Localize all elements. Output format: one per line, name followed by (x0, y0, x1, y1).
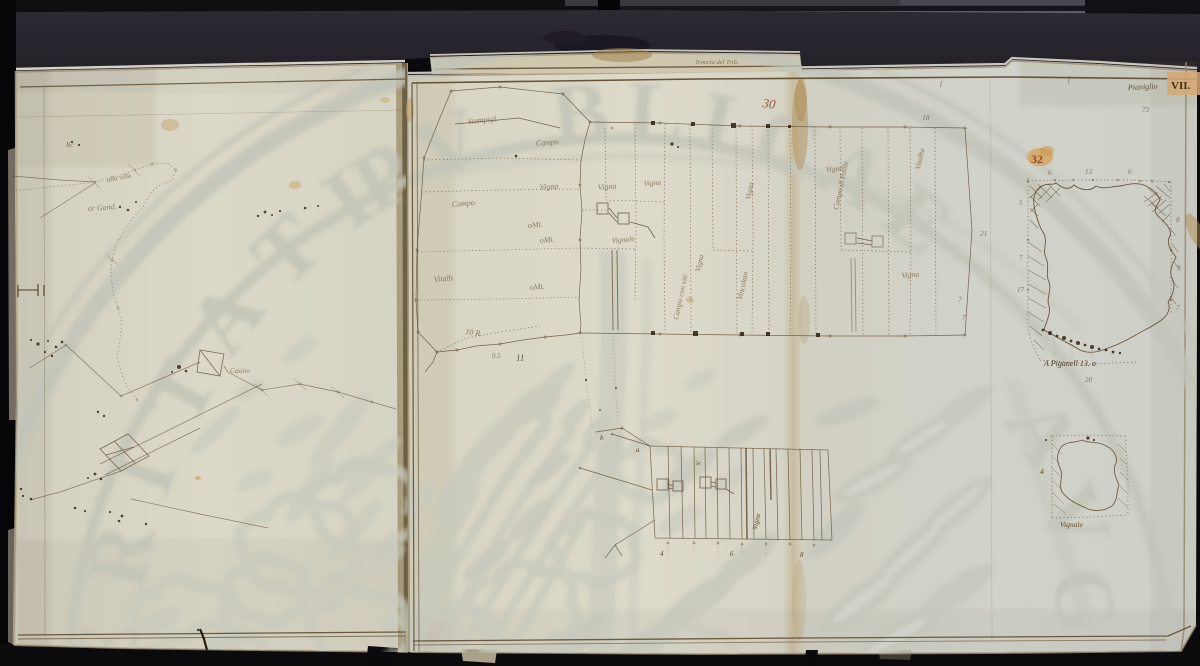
svg-text:32: 32 (1031, 152, 1043, 166)
svg-text:6: 6 (730, 550, 734, 558)
svg-text:B: B (547, 63, 613, 164)
svg-text:6: 6 (1048, 169, 1052, 177)
svg-text:b: b (600, 434, 604, 442)
svg-text:Vigna: Vigna (539, 181, 558, 192)
svg-text:7: 7 (962, 313, 966, 322)
svg-text:a: a (636, 446, 640, 454)
svg-text:30: 30 (761, 95, 777, 112)
svg-text:11: 11 (516, 353, 524, 363)
svg-text:oMt.: oMt. (529, 282, 545, 292)
svg-text:Vignale: Vignale (1060, 520, 1083, 529)
svg-text:Vigna: Vigna (901, 269, 919, 280)
svg-text:73: 73 (1142, 106, 1150, 114)
svg-text:17: 17 (1017, 286, 1025, 294)
svg-text:7: 7 (1019, 254, 1023, 262)
svg-text:8: 8 (800, 551, 804, 559)
svg-text:Rc: Rc (65, 141, 74, 149)
svg-text:20: 20 (1085, 376, 1093, 384)
svg-text:VII.: VII. (1171, 80, 1191, 92)
svg-text:4: 4 (660, 550, 664, 558)
svg-text:9: 9 (1177, 264, 1181, 272)
svg-text:Vigna: Vigna (597, 181, 616, 192)
svg-text:oMt.: oMt. (527, 220, 543, 230)
svg-text:Traccia del Trib.: Traccia del Trib. (695, 59, 739, 66)
svg-text:6: 6 (1128, 168, 1132, 176)
svg-text:21: 21 (980, 229, 988, 238)
svg-text:18: 18 (922, 113, 930, 122)
svg-text:13: 13 (1085, 168, 1093, 176)
svg-text:Pianiglio: Pianiglio (1127, 82, 1158, 93)
svg-text:Vitalb.: Vitalb. (433, 273, 455, 284)
svg-text:Vigna: Vigna (825, 163, 843, 174)
svg-text:A Piganell 13. o: A Piganell 13. o (1043, 359, 1096, 368)
svg-text:Vigna: Vigna (643, 177, 661, 188)
svg-text:oMt.: oMt. (539, 235, 555, 245)
svg-text:8: 8 (1176, 216, 1180, 224)
svg-text:0.5: 0.5 (492, 352, 501, 360)
svg-text:7: 7 (1176, 304, 1180, 312)
svg-text:5: 5 (1019, 199, 1023, 207)
svg-text:7: 7 (958, 295, 962, 304)
svg-text:4: 4 (1040, 467, 1044, 476)
svg-text:Casino: Casino (230, 367, 250, 375)
